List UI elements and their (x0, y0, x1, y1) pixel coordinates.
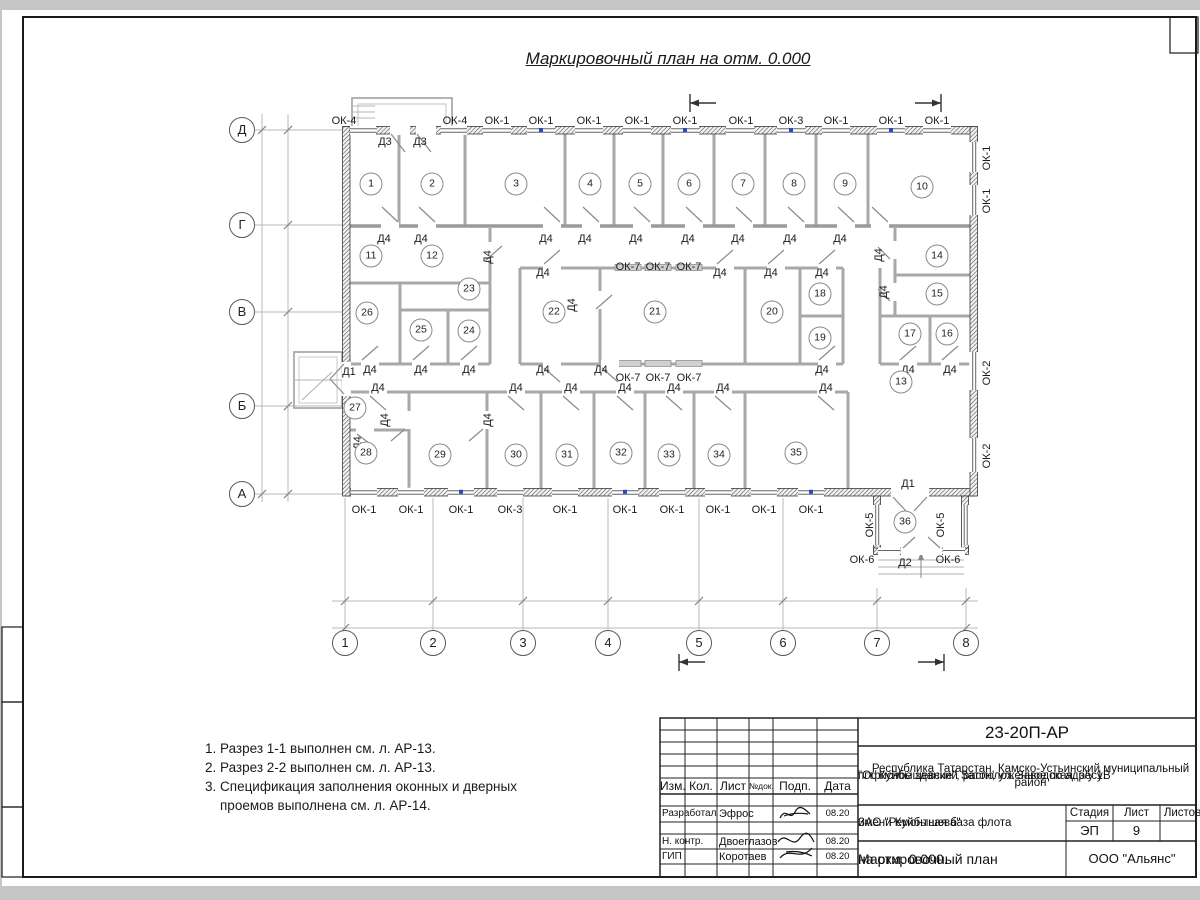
organization-name: ООО "Альянс" (1066, 842, 1198, 876)
sheet-name: Маркировочный план на отм. 0.000. (858, 842, 1066, 876)
stage-label: Стадия (1066, 806, 1113, 821)
person-role: ГИП (662, 851, 717, 862)
person-name: Двоеглазов (719, 836, 773, 848)
person-name: Эфрос (719, 808, 773, 820)
notes-block: 1. Разрез 1-1 выполнен см. л. АР-13. 2. … (205, 739, 517, 815)
person-role: Н. контр. (662, 836, 717, 847)
entrance-porches (294, 98, 964, 578)
col-ndok: №док. (749, 778, 773, 794)
sheet-title: Маркировочный план на отм. 0.000 (518, 49, 818, 69)
title-block: 23-20П-АР "Офисное здание", расположенно… (660, 718, 1200, 877)
section-cut-marks (679, 94, 944, 671)
col-izm: Изм. (660, 778, 685, 794)
person-date: 08.20 (817, 851, 858, 862)
note-line: 1. Разрез 1-1 выполнен см. л. АР-13. (205, 739, 517, 758)
interior-doors (356, 207, 959, 446)
person-name: Коротаев (719, 851, 773, 863)
drawing-sheet-page: ОК-4ОК-4ОК-1ОК-1ОК-1ОК-1ОК-1ОК-1ОК-3ОК-1… (0, 0, 1200, 900)
project-address: "Офисное здание", расположенное по адрес… (858, 747, 1200, 805)
person-date: 08.20 (817, 808, 858, 819)
note-line: 3. Спецификация заполнения оконных и две… (205, 777, 517, 796)
col-kol: Кол. (685, 778, 717, 794)
note-line: проемов выполнена см. л. АР-14. (205, 796, 517, 815)
sheet-label: Лист (1113, 806, 1160, 821)
sheet-number: 9 (1113, 822, 1160, 840)
client-name: ЗАО "Ремонтная база флота имени Куйбышев… (858, 806, 1066, 840)
interior-windows (615, 265, 702, 367)
col-list: Лист (717, 778, 749, 794)
interior-walls (345, 134, 975, 489)
col-podp: Подп. (773, 778, 817, 794)
person-role: Разработал (662, 808, 717, 819)
note-line: 2. Разрез 2-2 выполнен см. л. АР-13. (205, 758, 517, 777)
sheets-label: Листов (1160, 806, 1200, 821)
person-date: 08.20 (817, 836, 858, 847)
stage-value: ЭП (1066, 822, 1113, 840)
document-code: 23-20П-АР (858, 720, 1196, 746)
col-data: Дата (817, 778, 858, 794)
window-vent-marks (459, 128, 893, 494)
